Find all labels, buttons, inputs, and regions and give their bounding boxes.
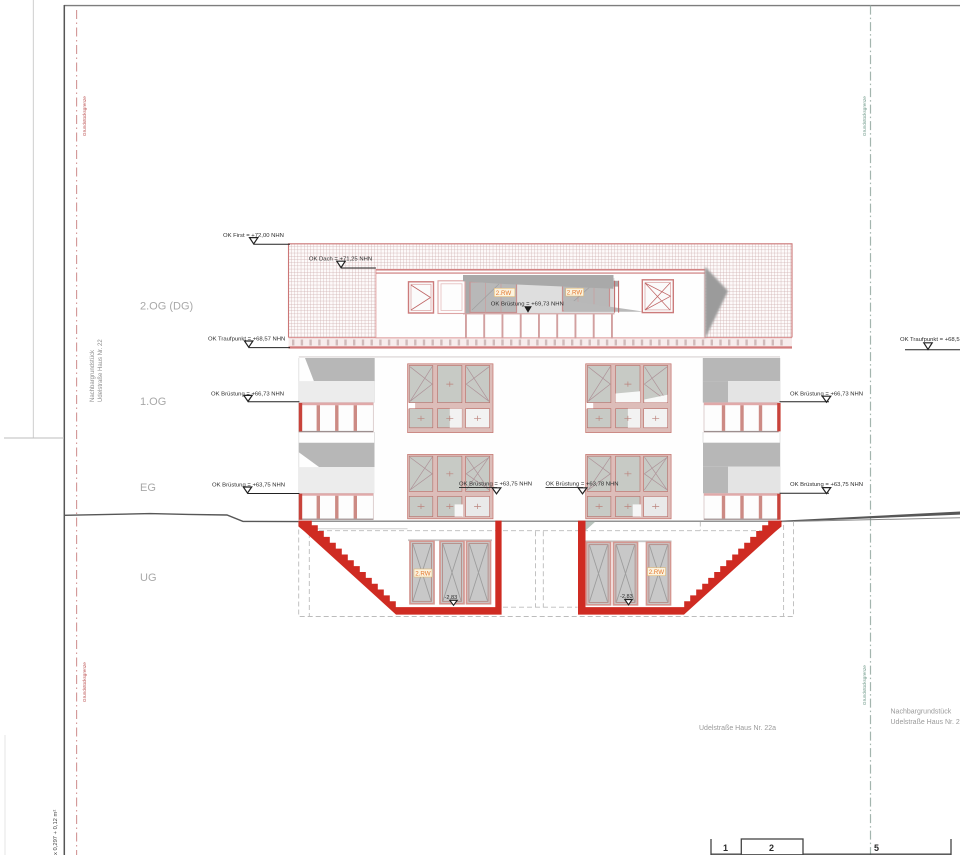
svg-text:x 0,297 + 0,12 m²: x 0,297 + 0,12 m² bbox=[53, 810, 59, 855]
svg-text:OK Traufpunkt = +68,5: OK Traufpunkt = +68,5 bbox=[900, 337, 960, 343]
svg-text:2.RW: 2.RW bbox=[567, 290, 583, 297]
svg-text:2: 2 bbox=[769, 843, 774, 853]
svg-text:Nachbargrundstück: Nachbargrundstück bbox=[891, 709, 952, 716]
svg-text:1.OG: 1.OG bbox=[140, 396, 166, 408]
svg-text:EG: EG bbox=[140, 482, 156, 494]
svg-text:Grundstücksgrenze: Grundstücksgrenze bbox=[862, 96, 867, 136]
svg-text:Grundstücksgrenze: Grundstücksgrenze bbox=[82, 662, 87, 702]
svg-text:Udelstraße Haus Nr. 22: Udelstraße Haus Nr. 22 bbox=[98, 339, 104, 402]
svg-text:OK Brüstung = +63,75 NHN: OK Brüstung = +63,75 NHN bbox=[790, 482, 863, 488]
svg-text:OK Brüstung = +63,78 NHN: OK Brüstung = +63,78 NHN bbox=[546, 482, 619, 488]
svg-text:2.OG (DG): 2.OG (DG) bbox=[140, 301, 193, 313]
svg-text:Nachbargrundstück: Nachbargrundstück bbox=[90, 349, 96, 402]
svg-text:Grundstücksgrenze: Grundstücksgrenze bbox=[82, 96, 87, 136]
svg-text:5: 5 bbox=[874, 843, 879, 853]
svg-text:2.RW: 2.RW bbox=[649, 569, 665, 576]
svg-text:Udelstraße Haus Nr. 2: Udelstraße Haus Nr. 2 bbox=[891, 719, 960, 726]
svg-text:1: 1 bbox=[723, 843, 728, 853]
svg-text:2.RW: 2.RW bbox=[496, 290, 512, 297]
svg-text:UG: UG bbox=[140, 572, 157, 584]
svg-text:2.RW: 2.RW bbox=[415, 571, 431, 578]
svg-text:Grundstücksgrenze: Grundstücksgrenze bbox=[862, 665, 867, 705]
svg-text:Udelstraße Haus Nr. 22a: Udelstraße Haus Nr. 22a bbox=[699, 725, 776, 732]
svg-text:OK Brüstung = +63,75 NHN: OK Brüstung = +63,75 NHN bbox=[459, 482, 532, 488]
